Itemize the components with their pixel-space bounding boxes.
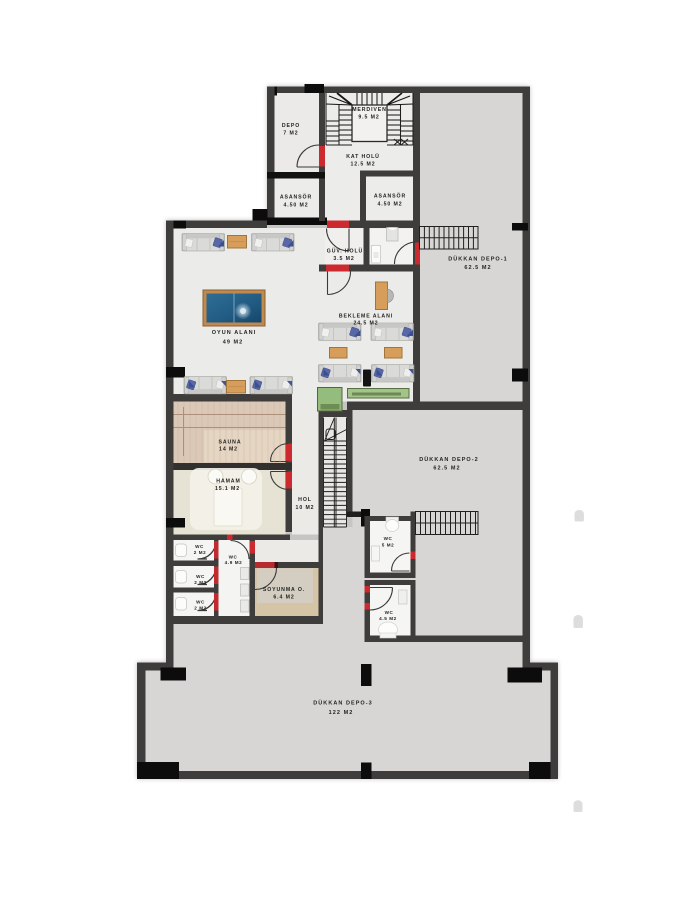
svg-text:WC: WC <box>195 544 204 549</box>
svg-text:ASANSÖR: ASANSÖR <box>374 193 406 200</box>
svg-text:DÜKKAN DEPO-2: DÜKKAN DEPO-2 <box>419 456 479 463</box>
svg-text:DÜKKAN DEPO-3: DÜKKAN DEPO-3 <box>313 700 373 707</box>
svg-text:SOYUNMA O.: SOYUNMA O. <box>263 587 305 593</box>
svg-text:10 M2: 10 M2 <box>296 505 315 511</box>
svg-text:ASANSÖR: ASANSÖR <box>280 194 312 201</box>
svg-text:49 M2: 49 M2 <box>223 340 244 346</box>
svg-text:BEKLEME ALANI: BEKLEME ALANI <box>339 314 393 320</box>
svg-text:WC: WC <box>385 610 394 615</box>
svg-text:2 M2: 2 M2 <box>194 550 207 555</box>
svg-text:7 M2: 7 M2 <box>283 131 298 137</box>
svg-text:12.5 M2: 12.5 M2 <box>350 162 375 168</box>
svg-text:HOL: HOL <box>298 497 312 503</box>
svg-text:WC: WC <box>384 536 393 541</box>
svg-text:2 M2: 2 M2 <box>194 580 207 585</box>
svg-text:15.1 M2: 15.1 M2 <box>215 486 240 492</box>
svg-text:DÜKKAN DEPO-1: DÜKKAN DEPO-1 <box>448 256 508 263</box>
svg-text:4.50 M2: 4.50 M2 <box>283 203 308 209</box>
svg-text:9.5 M2: 9.5 M2 <box>358 115 379 121</box>
svg-text:WC: WC <box>196 600 205 605</box>
svg-text:122 M2: 122 M2 <box>329 710 354 716</box>
svg-text:6.4 M2: 6.4 M2 <box>273 595 294 601</box>
svg-text:KAT HOLÜ: KAT HOLÜ <box>346 153 380 160</box>
svg-text:24.5 M2: 24.5 M2 <box>353 321 378 327</box>
svg-text:OYUN ALANI: OYUN ALANI <box>212 330 257 336</box>
svg-text:62.5 M2: 62.5 M2 <box>464 265 491 271</box>
svg-text:3.5 M2: 3.5 M2 <box>333 256 354 262</box>
svg-text:DEPO: DEPO <box>282 123 300 129</box>
svg-text:SAUNA: SAUNA <box>219 440 242 446</box>
svg-text:4.9 M2: 4.9 M2 <box>225 560 243 565</box>
svg-text:GÜV. HOLÜ: GÜV. HOLÜ <box>327 248 363 255</box>
svg-text:62.5 M2: 62.5 M2 <box>433 466 460 472</box>
svg-text:HAMAM: HAMAM <box>216 479 240 485</box>
svg-text:WC: WC <box>196 574 205 579</box>
svg-text:2 M2: 2 M2 <box>194 606 207 611</box>
svg-text:MERDIVEN: MERDIVEN <box>352 107 387 113</box>
svg-text:4.5 M2: 4.5 M2 <box>379 616 397 621</box>
svg-text:14 M2: 14 M2 <box>219 447 238 453</box>
svg-text:WC: WC <box>229 555 238 560</box>
svg-text:5 M2: 5 M2 <box>382 543 395 548</box>
svg-text:4.50 M2: 4.50 M2 <box>377 202 402 208</box>
